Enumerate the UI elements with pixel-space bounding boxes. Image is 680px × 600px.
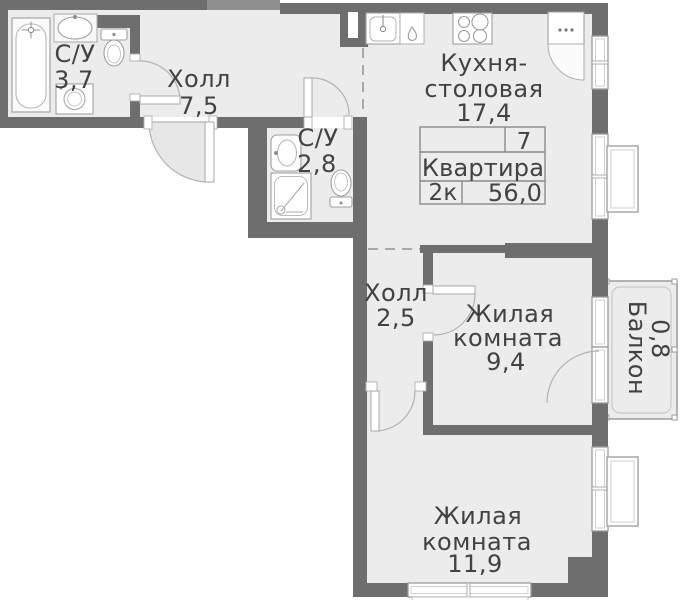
- wall-kitchen-bottom-b: [505, 243, 592, 258]
- wall-right-5: [592, 531, 608, 583]
- label-living2-line1: Жилая: [434, 502, 522, 530]
- wall-bath2-left: [248, 128, 267, 222]
- floor-plan-svg: 7 Квартира 2к 56,0 С/У 3,7 Холл 7,5 С/У …: [0, 0, 680, 600]
- ac-basket-kitchen: [607, 146, 638, 212]
- entrance-door-swing: [149, 122, 209, 182]
- window-kitchen-1: [592, 36, 608, 89]
- bathroom2-door-leaf: [304, 78, 312, 117]
- label-bathroom2: С/У: [298, 124, 339, 152]
- area-hall1: 7,5: [179, 92, 219, 120]
- wall-shaft-bottom: [340, 38, 368, 47]
- living1-door-leaf: [433, 286, 475, 294]
- dishwasher-drop-icon: [400, 13, 424, 44]
- label-bathroom1: С/У: [55, 40, 96, 68]
- wall-band-bottom-a: [0, 117, 145, 128]
- sink-icon: [54, 14, 97, 42]
- area-bathroom1: 3,7: [54, 66, 94, 94]
- apartment-type-label: Квартира: [422, 154, 544, 182]
- wall-bottom-a: [353, 583, 408, 597]
- window-balcony-fixed: [592, 297, 608, 347]
- bathroom1-door-leaf: [140, 96, 180, 104]
- area-living2: 11,9: [447, 550, 502, 578]
- floor-plan: 7 Квартира 2к 56,0 С/У 3,7 Холл 7,5 С/У …: [0, 0, 680, 600]
- wall-right-2: [592, 89, 608, 134]
- wall-room94-left-b: [423, 333, 433, 425]
- wall-top-mid: [207, 0, 280, 10]
- balcony-door-leaf: [592, 347, 608, 403]
- kitchen-sink-icon: [366, 13, 400, 44]
- area-bathroom2: 2,8: [297, 150, 337, 178]
- info-table: 7 Квартира 2к 56,0: [420, 127, 545, 207]
- wall-pilaster: [568, 557, 592, 583]
- wall-left: [0, 0, 8, 128]
- wall-right-1: [592, 3, 608, 36]
- bathtub-icon: [12, 18, 50, 112]
- wall-right-4: [592, 403, 608, 447]
- shower-icon: [271, 173, 311, 219]
- area-living1: 9,4: [486, 348, 526, 376]
- ac-basket-living2: [607, 457, 638, 526]
- stove-icon: [453, 13, 492, 44]
- wall-right-3: [592, 219, 608, 297]
- label-hall2: Холл: [364, 279, 428, 307]
- wall-bottom-b: [531, 583, 608, 597]
- wall-bath1-right-b: [130, 101, 140, 117]
- apartment-number: 7: [517, 129, 532, 155]
- area-kitchen: 17,4: [456, 99, 511, 127]
- label-hall1: Холл: [167, 65, 231, 93]
- wall-column-left: [353, 117, 367, 583]
- window-living2-side: [592, 447, 608, 531]
- label-kitchen-line1: Кухня-: [440, 49, 527, 77]
- wall-bath2-bottom: [248, 222, 367, 238]
- shaft-void: [348, 12, 358, 38]
- entrance-door-leaf: [205, 122, 214, 182]
- apartment-total-area: 56,0: [488, 179, 542, 207]
- wall-top-left: [0, 0, 207, 10]
- apartment-rooms-label: 2к: [429, 180, 458, 206]
- wall-kitchen-bottom-a: [420, 245, 505, 253]
- area-balcony: 0,8: [646, 319, 674, 359]
- area-hall2: 2,5: [376, 304, 416, 332]
- wall-band-bottom-b: [217, 117, 305, 128]
- living2-door-leaf: [371, 391, 379, 431]
- window-living2-bottom: [408, 583, 531, 600]
- wall-room94-bottom: [423, 425, 607, 435]
- window-kitchen-2: [592, 134, 608, 219]
